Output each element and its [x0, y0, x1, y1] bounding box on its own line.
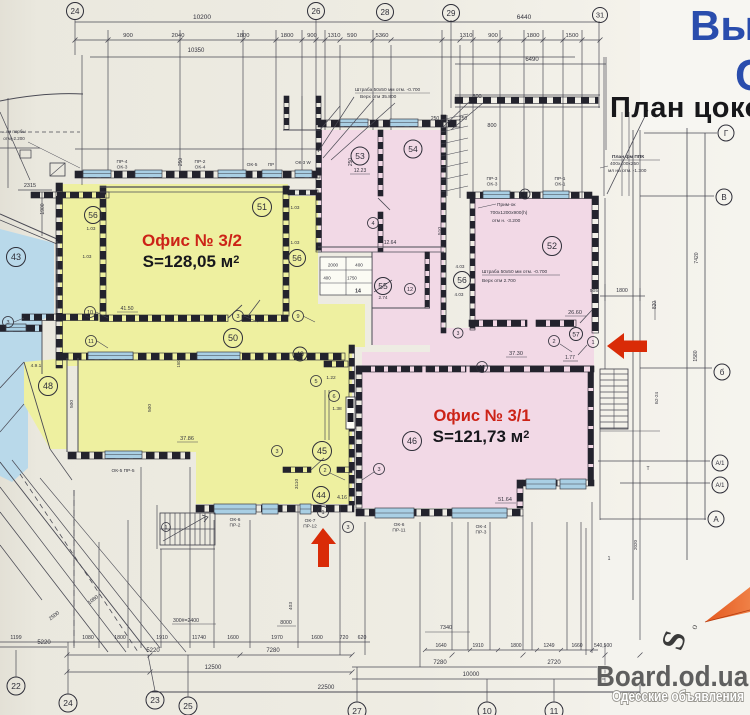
svg-text:4.16: 4.16 [337, 495, 347, 501]
svg-text:6440: 6440 [517, 14, 532, 21]
svg-text:505: 505 [590, 288, 598, 294]
svg-text:52: 52 [547, 241, 557, 251]
svg-text:50: 50 [228, 333, 238, 343]
svg-text:900: 900 [307, 33, 317, 39]
svg-text:1750: 1750 [347, 276, 357, 281]
svg-text:ОК-1: ОК-1 [555, 182, 566, 188]
svg-text:7340: 7340 [440, 625, 452, 631]
svg-text:26.60: 26.60 [568, 310, 582, 316]
svg-text:10000: 10000 [463, 672, 480, 678]
svg-text:14: 14 [355, 289, 361, 295]
svg-text:ОК-6: ОК-6 [394, 522, 405, 528]
svg-text:4: 4 [371, 221, 374, 227]
svg-text:25: 25 [183, 701, 193, 711]
svg-text:План фм ППК: План фм ППК [612, 153, 644, 160]
svg-text:3: 3 [457, 331, 460, 337]
svg-text:1800: 1800 [527, 33, 540, 39]
svg-text:А/1: А/1 [715, 461, 725, 467]
svg-text:А: А [713, 515, 719, 524]
svg-text:48: 48 [43, 381, 53, 391]
svg-text:...ли пербы: ...ли пербы [2, 129, 25, 134]
svg-text:Штраба 50х50 мм отм. -0.700: Штраба 50х50 мм отм. -0.700 [482, 269, 548, 275]
svg-text:56: 56 [88, 210, 98, 220]
svg-text:3: 3 [236, 314, 239, 320]
svg-text:1910: 1910 [156, 635, 168, 641]
svg-text:57: 57 [572, 331, 580, 338]
svg-text:1199: 1199 [10, 635, 21, 641]
svg-text:1249: 1249 [543, 643, 554, 649]
svg-text:1600: 1600 [311, 635, 323, 641]
svg-text:2.74: 2.74 [379, 295, 388, 300]
svg-text:250: 250 [178, 158, 184, 167]
svg-text:37.30: 37.30 [509, 351, 523, 357]
svg-text:22: 22 [11, 681, 21, 691]
svg-text:51.64: 51.64 [498, 497, 512, 503]
svg-text:отм|-2.200: отм|-2.200 [3, 136, 25, 141]
svg-text:8000: 8000 [280, 620, 292, 626]
svg-text:150: 150 [176, 360, 181, 368]
svg-text:11: 11 [550, 706, 559, 715]
svg-text:1.03: 1.03 [291, 240, 300, 245]
svg-text:400: 400 [355, 263, 363, 268]
svg-text:45: 45 [317, 446, 327, 456]
svg-text:Штраба 50х50 мм отм. -0.700: Штраба 50х50 мм отм. -0.700 [355, 87, 421, 93]
svg-text:1640: 1640 [435, 643, 446, 649]
svg-text:Одесские объявления: Одесские объявления [612, 688, 744, 704]
svg-text:29: 29 [447, 9, 456, 18]
svg-text:б: б [720, 368, 725, 377]
svg-text:10: 10 [87, 310, 93, 316]
svg-text:700х1200х900(h): 700х1200х900(h) [490, 210, 528, 216]
svg-text:Вы: Вы [690, 2, 750, 49]
svg-text:10350: 10350 [188, 48, 205, 54]
svg-text:5220: 5220 [146, 648, 160, 654]
svg-text:ОК-6: ОК-6 [230, 517, 241, 523]
svg-text:1800: 1800 [281, 33, 294, 39]
svg-text:В: В [721, 193, 726, 202]
svg-text:ПР: ПР [268, 162, 274, 167]
svg-text:4.03: 4.03 [456, 264, 465, 269]
svg-text:46: 46 [407, 436, 417, 446]
svg-text:1: 1 [591, 340, 594, 346]
svg-text:6490: 6490 [525, 57, 539, 63]
svg-text:А/1: А/1 [715, 483, 725, 489]
svg-text:1580: 1580 [693, 350, 699, 361]
svg-text:11740: 11740 [192, 635, 206, 641]
svg-text:37.86: 37.86 [180, 436, 194, 442]
svg-text:12500: 12500 [205, 665, 222, 671]
svg-text:ПР-2: ПР-2 [230, 523, 241, 529]
svg-text:500: 500 [147, 404, 153, 412]
svg-text:1800: 1800 [237, 33, 250, 39]
svg-text:7420: 7420 [694, 252, 700, 263]
svg-text:2040: 2040 [172, 33, 185, 39]
svg-text:900: 900 [488, 33, 498, 39]
svg-text:300#=2400: 300#=2400 [173, 618, 199, 624]
svg-text:10: 10 [479, 365, 485, 371]
svg-text:500: 500 [69, 400, 75, 408]
svg-text:10200: 10200 [193, 14, 211, 21]
svg-text:S=128,05 м2: S=128,05 м2 [143, 252, 240, 271]
svg-text:1.03: 1.03 [83, 254, 92, 259]
svg-text:3: 3 [377, 467, 380, 473]
svg-text:1: 1 [608, 556, 611, 562]
svg-text:Верх отм 35.800: Верх отм 35.800 [360, 94, 397, 100]
svg-text:Верх отм 2.700: Верх отм 2.700 [482, 278, 516, 284]
svg-text:7280: 7280 [433, 660, 447, 666]
svg-text:7280: 7280 [266, 648, 280, 654]
svg-text:1800: 1800 [510, 643, 521, 649]
svg-text:ПР-2: ПР-2 [195, 159, 206, 165]
svg-text:24: 24 [63, 698, 73, 708]
svg-text:2: 2 [323, 468, 326, 474]
svg-text:План цоко: План цоко [610, 92, 750, 124]
svg-text:мл на отм. -1.300: мл на отм. -1.300 [608, 168, 647, 174]
svg-text:26: 26 [312, 7, 321, 16]
svg-text:5220: 5220 [37, 640, 51, 646]
svg-text:1.38: 1.38 [332, 406, 342, 412]
svg-text:ОК-5 ПР-5: ОК-5 ПР-5 [111, 468, 134, 474]
svg-text:2020: 2020 [633, 539, 638, 550]
svg-text:1970: 1970 [271, 635, 283, 641]
svg-text:1910: 1910 [472, 643, 483, 649]
svg-text:56: 56 [292, 253, 302, 263]
svg-text:3: 3 [346, 525, 349, 531]
svg-text:ПР-1: ПР-1 [555, 176, 566, 182]
svg-text:ПР-11: ПР-11 [392, 528, 406, 534]
svg-text:Офис № 3/2: Офис № 3/2 [142, 231, 242, 250]
svg-text:3: 3 [275, 449, 278, 455]
svg-text:54: 54 [408, 144, 418, 154]
svg-text:22500: 22500 [318, 685, 335, 691]
svg-text:12: 12 [407, 287, 413, 293]
svg-text:1310: 1310 [328, 33, 341, 39]
svg-text:T: T [646, 466, 649, 472]
svg-text:1660: 1660 [571, 643, 582, 649]
svg-text:43: 43 [11, 252, 21, 262]
svg-text:1800: 1800 [616, 288, 628, 294]
svg-text:10: 10 [482, 706, 492, 715]
svg-text:510: 510 [437, 227, 443, 235]
svg-text:ОК-5: ОК-5 [247, 162, 258, 168]
svg-text:11: 11 [88, 339, 94, 345]
svg-text:5360: 5360 [376, 33, 389, 39]
svg-text:56: 56 [457, 275, 467, 285]
svg-text:1310: 1310 [460, 33, 473, 39]
svg-text:ОК-4: ОК-4 [195, 165, 206, 171]
svg-text:2315: 2315 [24, 183, 36, 189]
svg-text:540,500: 540,500 [594, 643, 612, 649]
svg-text:3: 3 [524, 192, 527, 198]
svg-text:53: 53 [355, 151, 365, 161]
svg-text:отм н. -3.200: отм н. -3.200 [492, 218, 521, 224]
svg-text:1.22: 1.22 [326, 375, 336, 381]
svg-text:23: 23 [150, 695, 160, 705]
svg-text:ОК-7: ОК-7 [305, 518, 316, 524]
svg-text:Г: Г [724, 129, 729, 138]
svg-text:1800: 1800 [114, 635, 126, 641]
svg-text:31: 31 [596, 11, 604, 20]
svg-text:1500: 1500 [566, 33, 579, 39]
svg-text:403: 403 [288, 602, 294, 610]
svg-text:12.23: 12.23 [354, 168, 367, 174]
svg-text:9: 9 [296, 314, 299, 320]
svg-text:5: 5 [314, 379, 317, 385]
svg-text:51: 51 [257, 202, 267, 212]
svg-text:Офис № 3/1: Офис № 3/1 [433, 407, 530, 425]
svg-text:Прим-ок: Прим-ок [497, 202, 516, 208]
svg-text:1900: 1900 [40, 203, 46, 214]
svg-text:2000: 2000 [328, 263, 339, 268]
svg-text:44: 44 [316, 490, 326, 500]
svg-text:6: 6 [332, 394, 335, 400]
svg-text:1.77: 1.77 [565, 355, 575, 361]
svg-text:Б2-24: Б2-24 [654, 392, 659, 404]
svg-text:400х400х250: 400х400х250 [610, 161, 639, 167]
svg-text:1: 1 [165, 525, 168, 531]
svg-text:900: 900 [123, 33, 133, 39]
svg-text:400: 400 [323, 276, 331, 281]
svg-text:41.50: 41.50 [121, 306, 134, 312]
svg-text:12.64: 12.64 [384, 240, 397, 246]
svg-text:ОК-4: ОК-4 [476, 524, 487, 530]
svg-text:1: 1 [321, 510, 324, 516]
svg-text:ПР-12: ПР-12 [303, 524, 317, 530]
svg-text:720: 720 [340, 635, 349, 641]
svg-text:S=121,73 м2: S=121,73 м2 [433, 427, 530, 446]
svg-text:2: 2 [552, 339, 555, 345]
svg-text:49: 49 [296, 352, 304, 359]
svg-text:ОК-3 W: ОК-3 W [295, 160, 311, 165]
svg-text:4.03: 4.03 [455, 292, 464, 297]
svg-text:1.03: 1.03 [87, 226, 96, 231]
svg-text:ОК-3: ОК-3 [117, 165, 128, 171]
svg-text:3: 3 [6, 320, 9, 326]
svg-text:ПР-4: ПР-4 [117, 159, 128, 165]
svg-text:1.03: 1.03 [291, 205, 300, 210]
svg-text:590: 590 [347, 33, 357, 39]
svg-text:620: 620 [358, 635, 367, 641]
svg-text:800: 800 [487, 123, 496, 129]
svg-text:ПР-3: ПР-3 [487, 176, 498, 182]
svg-text:24: 24 [71, 7, 80, 16]
svg-text:1080: 1080 [82, 635, 94, 641]
svg-text:2720: 2720 [547, 660, 561, 666]
svg-text:ОК-3: ОК-3 [487, 182, 498, 188]
svg-text:1600: 1600 [227, 635, 239, 641]
svg-text:ПР-3: ПР-3 [476, 530, 487, 536]
svg-text:3110: 3110 [294, 479, 300, 490]
svg-text:4.9.1: 4.9.1 [31, 363, 42, 369]
svg-text:27: 27 [352, 706, 362, 715]
svg-text:28: 28 [381, 8, 390, 17]
